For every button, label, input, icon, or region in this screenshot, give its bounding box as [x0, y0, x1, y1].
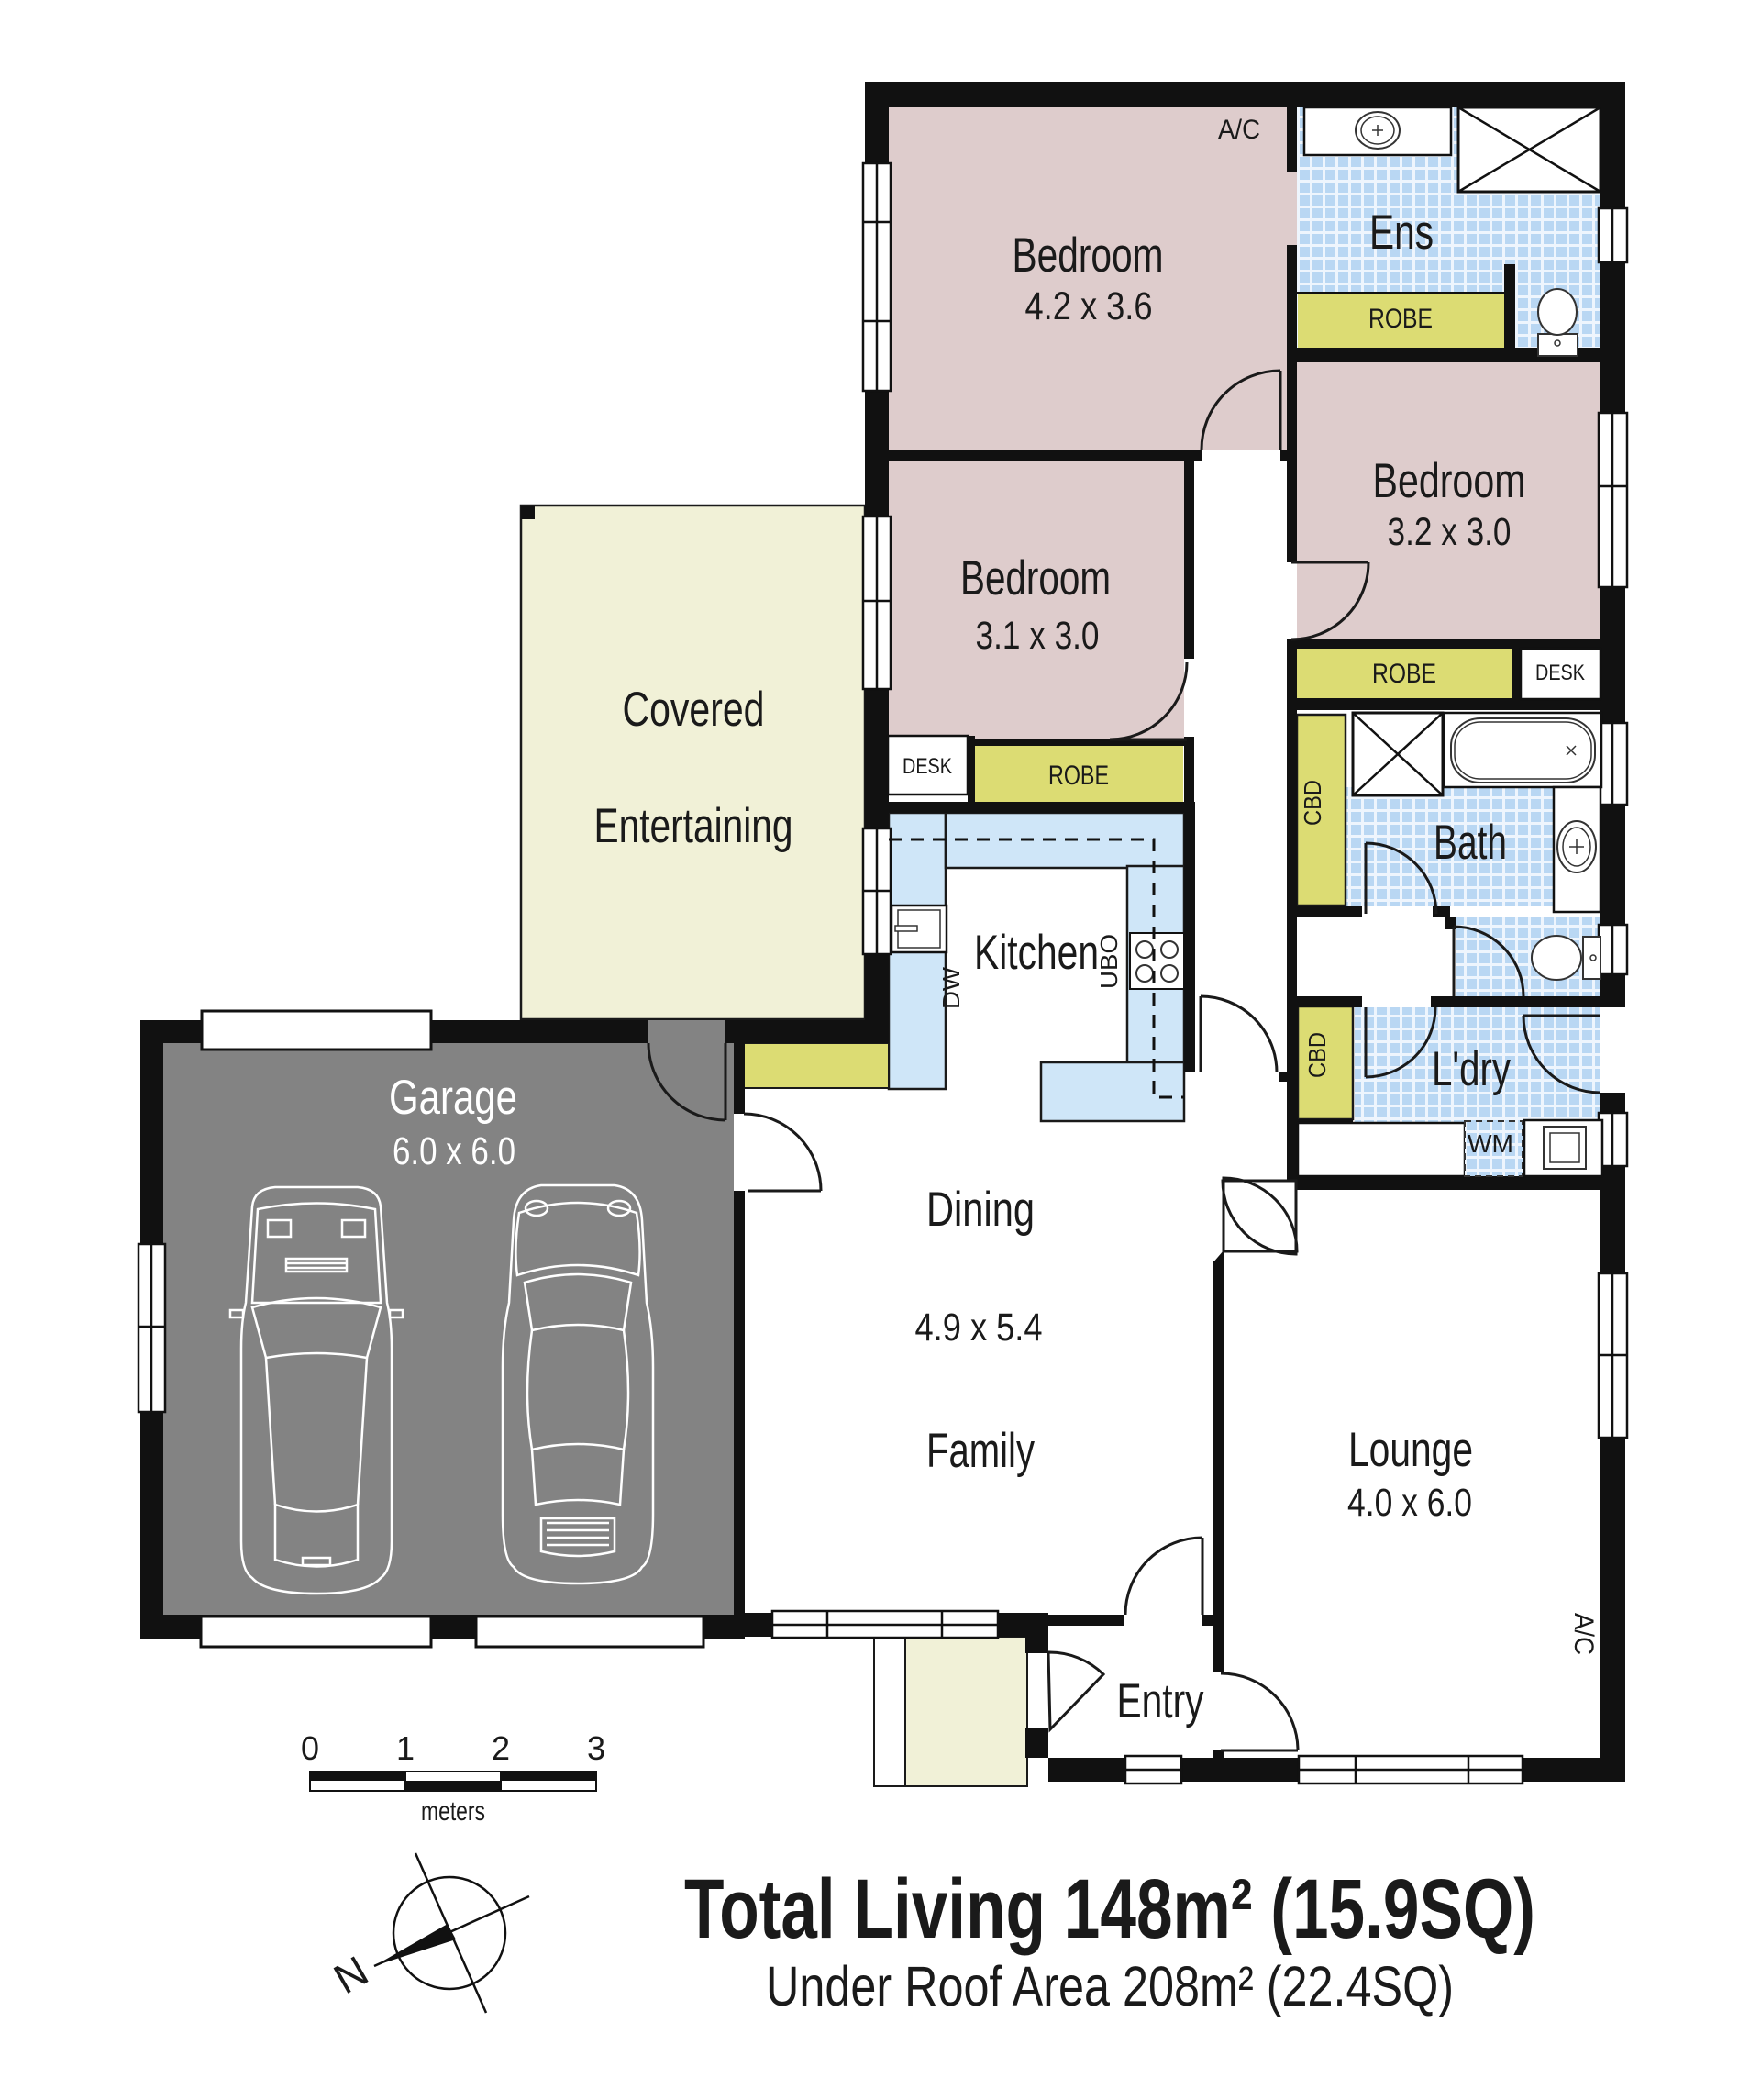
svg-text:3.1 x 3.0: 3.1 x 3.0 — [976, 614, 1100, 658]
svg-text:Under Roof Area 208m² (22.4SQ): Under Roof Area 208m² (22.4SQ) — [766, 1955, 1454, 2017]
svg-text:3.2 x 3.0: 3.2 x 3.0 — [1388, 510, 1512, 554]
svg-text:DESK: DESK — [1535, 661, 1585, 685]
svg-text:ROBE: ROBE — [1368, 304, 1433, 334]
svg-text:L'dry: L'dry — [1432, 1042, 1511, 1096]
svg-text:UBO: UBO — [1095, 934, 1123, 989]
svg-text:CBD: CBD — [1299, 780, 1326, 826]
svg-text:ROBE: ROBE — [1048, 761, 1109, 791]
svg-text:Ens: Ens — [1369, 206, 1434, 260]
svg-text:meters: meters — [421, 1796, 485, 1827]
svg-text:DESK: DESK — [903, 754, 952, 779]
svg-text:WM: WM — [1467, 1129, 1513, 1158]
svg-text:Entertaining: Entertaining — [594, 799, 793, 853]
svg-text:2: 2 — [492, 1729, 510, 1767]
svg-text:Total Living 148m² (15.9SQ): Total Living 148m² (15.9SQ) — [684, 1862, 1535, 1956]
svg-text:Dining: Dining — [926, 1183, 1035, 1237]
svg-text:Entry: Entry — [1117, 1674, 1204, 1728]
svg-text:Family: Family — [926, 1424, 1035, 1478]
svg-text:Bath: Bath — [1434, 816, 1507, 870]
svg-text:4.2 x 3.6: 4.2 x 3.6 — [1025, 284, 1153, 328]
svg-text:4.0 x 6.0: 4.0 x 6.0 — [1347, 1481, 1472, 1525]
svg-text:Bedroom: Bedroom — [1373, 454, 1526, 508]
svg-text:Kitchen: Kitchen — [974, 926, 1099, 980]
svg-text:3: 3 — [587, 1729, 605, 1767]
svg-text:A/C: A/C — [1568, 1613, 1599, 1655]
svg-text:A/C: A/C — [1218, 115, 1260, 145]
svg-text:Covered: Covered — [623, 683, 765, 737]
svg-text:Lounge: Lounge — [1348, 1423, 1473, 1477]
svg-text:DW: DW — [937, 967, 965, 1009]
svg-text:CBD: CBD — [1303, 1032, 1331, 1078]
svg-text:6.0 x 6.0: 6.0 x 6.0 — [393, 1129, 515, 1173]
svg-text:Bedroom: Bedroom — [1013, 228, 1164, 283]
svg-text:0: 0 — [301, 1729, 319, 1767]
svg-text:4.9 x 5.4: 4.9 x 5.4 — [915, 1306, 1043, 1350]
svg-text:Garage: Garage — [389, 1071, 517, 1125]
svg-text:ROBE: ROBE — [1372, 659, 1436, 689]
svg-text:Bedroom: Bedroom — [960, 551, 1111, 606]
svg-text:1: 1 — [396, 1729, 415, 1767]
